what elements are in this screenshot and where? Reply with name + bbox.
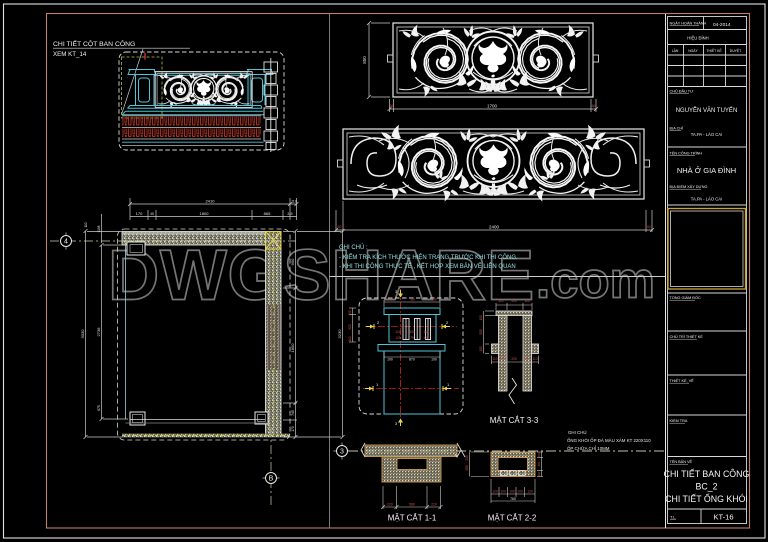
svg-text:114: 114 [395, 330, 400, 334]
svg-text:GHI CHÚ: GHI CHÚ [568, 430, 587, 435]
svg-text:675: 675 [97, 405, 101, 411]
svg-text:NGUYỄN VĂN TUYẾN: NGUYỄN VĂN TUYẾN [676, 107, 738, 114]
svg-text:300: 300 [465, 465, 469, 471]
svg-text:104: 104 [409, 330, 415, 334]
svg-text:760: 760 [510, 497, 516, 501]
svg-text:110: 110 [492, 357, 497, 361]
svg-text:DUYỆT: DUYỆT [730, 48, 742, 53]
svg-text:100: 100 [509, 490, 515, 494]
svg-text:CHỦ ĐẦU TƯ: CHỦ ĐẦU TƯ [670, 89, 695, 94]
svg-text:2: 2 [377, 320, 380, 325]
svg-text:1198: 1198 [97, 225, 101, 232]
svg-text:220: 220 [431, 503, 437, 507]
svg-text:100: 100 [500, 490, 506, 494]
svg-text:TÊN CÔNG TRÌNH: TÊN CÔNG TRÌNH [670, 151, 703, 156]
svg-text:170: 170 [136, 211, 143, 216]
svg-text:200: 200 [511, 299, 517, 303]
svg-text:XEM KT_14: XEM KT_14 [53, 51, 87, 58]
svg-text:500: 500 [479, 329, 483, 335]
svg-text:220: 220 [387, 503, 393, 507]
svg-text:1700: 1700 [487, 104, 498, 109]
svg-text:LẦN: LẦN [672, 49, 679, 53]
svg-text:200: 200 [500, 357, 506, 361]
svg-text:120: 120 [492, 490, 498, 494]
svg-text:MẶT CẮT 2-2: MẶT CẮT 2-2 [488, 514, 537, 523]
svg-text:NGÀY: NGÀY [688, 49, 698, 53]
svg-text:110: 110 [291, 200, 297, 204]
svg-text:THIẾT KẾ: THIẾT KẾ [706, 48, 722, 53]
svg-text:1: 1 [447, 382, 450, 387]
svg-text:110: 110 [348, 336, 352, 341]
svg-text:110: 110 [537, 452, 541, 457]
svg-text:3: 3 [395, 421, 398, 426]
svg-text:110: 110 [524, 299, 529, 303]
svg-text:850: 850 [362, 56, 367, 64]
svg-text:780: 780 [409, 298, 415, 302]
svg-text:100: 100 [517, 490, 523, 494]
svg-text:KIỂM TRA: KIỂM TRA [670, 418, 688, 423]
svg-text:HIỆU ĐÍNH: HIỆU ĐÍNH [687, 36, 708, 41]
svg-text:2: 2 [446, 320, 449, 325]
svg-text:745: 745 [291, 410, 295, 416]
svg-text:200: 200 [511, 357, 517, 361]
svg-text:120: 120 [527, 490, 533, 494]
svg-text:- KHI THI CÔNG THỰC TẾ , KẾT H: - KHI THI CÔNG THỰC TẾ , KẾT HỢP XEM BẢN… [339, 262, 516, 270]
svg-text:CHI TIẾT BAN CÔNG: CHI TIẾT BAN CÔNG [664, 469, 750, 479]
svg-text:1: 1 [376, 382, 379, 387]
svg-text:170: 170 [387, 298, 393, 302]
svg-text:MẶT CẮT 1-1: MẶT CẮT 1-1 [388, 514, 437, 523]
svg-text:2410: 2410 [206, 199, 216, 204]
svg-text:CHI TIẾT ỐNG KHÓI: CHI TIẾT ỐNG KHÓI [665, 493, 748, 504]
svg-text:200: 200 [523, 357, 529, 361]
svg-text:110: 110 [84, 222, 88, 227]
svg-text:100: 100 [348, 310, 352, 316]
svg-text:4: 4 [64, 239, 68, 246]
svg-text:220: 220 [465, 455, 469, 461]
svg-text:ỐNG KHÓI ỐP ĐÁ MÀU XÁM KT 220: ỐNG KHÓI ỐP ĐÁ MÀU XÁM KT 220X110 [567, 438, 651, 443]
svg-text:100: 100 [431, 298, 437, 302]
svg-text:865: 865 [264, 211, 271, 216]
svg-text:162: 162 [423, 330, 429, 334]
svg-text:MẶT CẮT 3-3: MẶT CẮT 3-3 [490, 416, 539, 425]
svg-text:04-2014: 04-2014 [713, 22, 731, 28]
svg-text:.com: .com [536, 252, 655, 309]
svg-text:870: 870 [409, 358, 415, 362]
svg-text:580: 580 [409, 503, 415, 507]
svg-text:TA.PA - LÀO CAI: TA.PA - LÀO CAI [691, 197, 723, 202]
svg-text:3230: 3230 [337, 329, 342, 339]
svg-text:100: 100 [431, 358, 437, 362]
svg-text:ỐP CHỮA CHỈ 10MM: ỐP CHỮA CHỈ 10MM [567, 446, 610, 451]
svg-text:170: 170 [291, 426, 295, 432]
svg-text:NGÀY HOÀN THÀNH: NGÀY HOÀN THÀNH [670, 22, 707, 26]
svg-text:T.L.: T.L. [670, 515, 676, 520]
svg-text:B: B [269, 476, 274, 483]
svg-text:2400: 2400 [489, 225, 500, 230]
svg-text:2738: 2738 [96, 327, 101, 337]
svg-text:125: 125 [423, 336, 429, 340]
svg-text:1800: 1800 [200, 211, 210, 216]
svg-text:100: 100 [479, 346, 483, 352]
svg-text:110: 110 [532, 357, 537, 361]
svg-text:110: 110 [537, 471, 541, 476]
svg-text:100: 100 [387, 358, 393, 362]
svg-text:125: 125 [395, 336, 401, 340]
svg-text:NHÀ Ở GIA ĐÌNH: NHÀ Ở GIA ĐÌNH [677, 166, 736, 175]
svg-text:3030: 3030 [80, 329, 85, 339]
svg-text:200: 200 [537, 461, 541, 466]
svg-text:60: 60 [647, 225, 651, 229]
svg-text:CHỦ TRÌ THIẾT KẾ: CHỦ TRÌ THIẾT KẾ [670, 334, 704, 339]
svg-text:- KIỂM TRA KÍCH THƯỚC HIỆN TRẠ: - KIỂM TRA KÍCH THƯỚC HIỆN TRẠNG TRƯỚC K… [339, 253, 518, 261]
svg-text:DWGSHARE: DWGSHARE [108, 237, 535, 316]
svg-text:60: 60 [338, 225, 342, 229]
svg-text:THIẾT KẾ, VẼ: THIẾT KẾ, VẼ [670, 378, 695, 383]
svg-text:ĐỊA ĐIỂM XÂY DỰNG: ĐỊA ĐIỂM XÂY DỰNG [670, 184, 708, 189]
svg-text:110: 110 [498, 299, 503, 303]
svg-text:GHI CHÚ :: GHI CHÚ : [339, 244, 368, 251]
svg-text:TA.PA - LÀO CAI: TA.PA - LÀO CAI [691, 132, 723, 137]
svg-text:66: 66 [390, 104, 394, 108]
svg-text:KT-16: KT-16 [713, 513, 733, 522]
svg-text:TÊN BẢN VẼ: TÊN BẢN VẼ [670, 459, 693, 464]
svg-text:240: 240 [287, 212, 293, 216]
svg-text:3: 3 [340, 449, 344, 456]
svg-text:1800: 1800 [290, 343, 295, 353]
svg-text:100: 100 [479, 315, 483, 321]
svg-text:900: 900 [290, 258, 295, 265]
svg-text:CHI TIẾT CỘT BAN CÔNG: CHI TIẾT CỘT BAN CÔNG [53, 38, 135, 48]
svg-text:500: 500 [348, 324, 352, 330]
svg-text:66: 66 [592, 104, 596, 108]
svg-text:BC_2: BC_2 [695, 482, 717, 492]
svg-text:ĐỊA CHỈ: ĐỊA CHỈ [670, 126, 684, 131]
svg-text:79: 79 [410, 336, 414, 340]
svg-text:TỔNG GIÁM ĐỐC: TỔNG GIÁM ĐỐC [670, 295, 701, 300]
svg-text:45: 45 [150, 212, 154, 216]
